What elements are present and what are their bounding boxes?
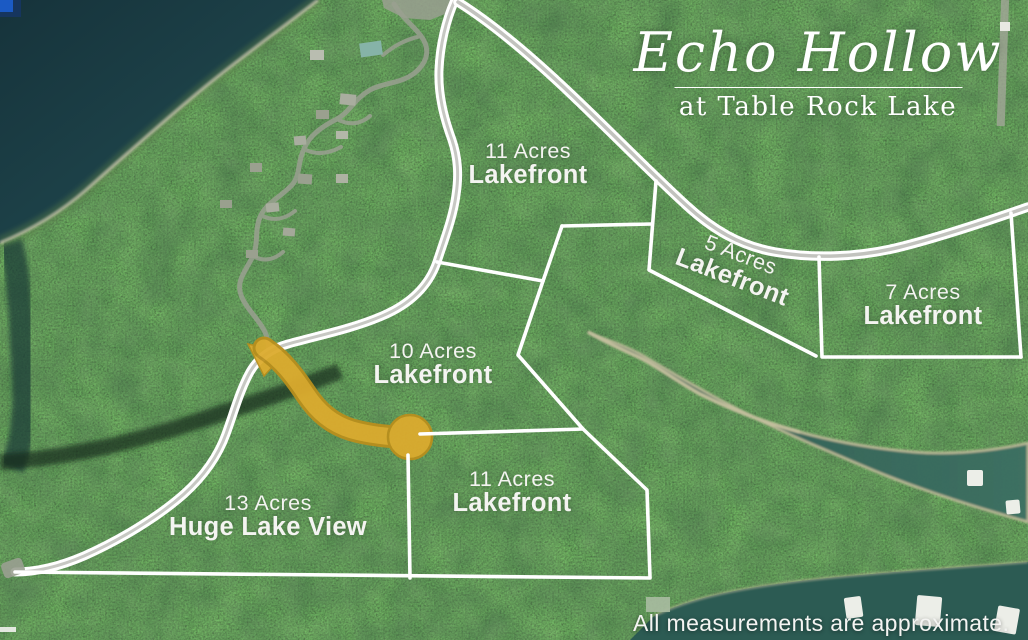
lot-label-10-acres: 10 Acres Lakefront: [374, 340, 493, 389]
watermark-fragment: [0, 627, 16, 632]
lot-label-11-acres-north: 11 Acres Lakefront: [469, 140, 588, 189]
creek-arm-west: [10, 243, 25, 468]
measurements-disclaimer: All measurements are approximate.: [633, 610, 1009, 637]
aerial-lot-map: Echo Hollow at Table Rock Lake 11 Acres …: [0, 0, 1028, 640]
cul-de-sac: [388, 415, 432, 459]
title-subtext: at Table Rock Lake: [634, 92, 1003, 122]
title-script-text: Echo Hollow: [634, 26, 1003, 80]
development-title: Echo Hollow at Table Rock Lake: [634, 26, 1003, 122]
title-underline: [674, 87, 962, 88]
dock-icon: [967, 470, 983, 486]
corner-ui-fragment-inner: [0, 0, 13, 12]
lot-label-11-acres-south: 11 Acres Lakefront: [453, 468, 572, 517]
dock-icon: [1005, 499, 1020, 514]
lot-label-13-acres: 13 Acres Huge Lake View: [169, 492, 367, 541]
corner-ui-fragment: [0, 0, 21, 17]
lot-label-7-acres: 7 Acres Lakefront: [864, 281, 983, 330]
